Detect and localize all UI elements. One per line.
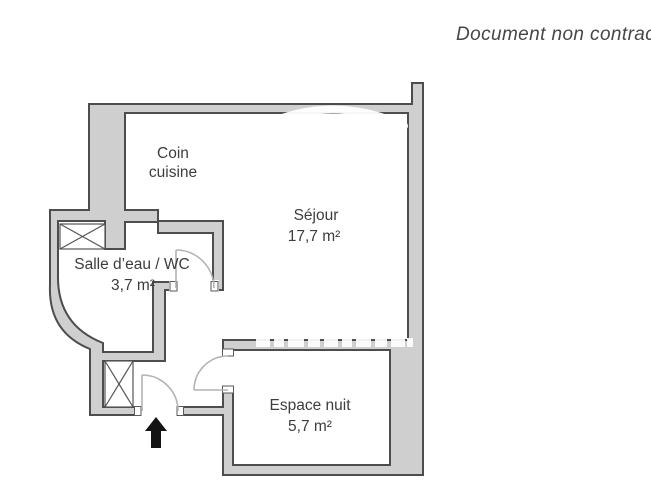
bathroom-shaft-box (60, 224, 105, 249)
room-name: Salle d’eau / WC (74, 256, 189, 273)
room-area: 3,7 m² (111, 277, 155, 294)
room-name: Séjour (294, 207, 339, 224)
room-name-line2: cuisine (149, 164, 197, 181)
room-label-coin-cuisine: Coin cuisine (149, 145, 197, 181)
entrance-arrow-icon (145, 417, 167, 448)
wall-structure (50, 83, 423, 475)
room-area: 17,7 m² (288, 228, 341, 245)
jamb (135, 407, 142, 416)
floor-plan-page: Document non contractuel (0, 0, 651, 488)
bedroom-door-opening (221, 355, 235, 387)
floor-plan-drawing: Coin cuisine Séjour 17,7 m² Salle d’eau … (0, 0, 651, 488)
room-name: Espace nuit (270, 397, 352, 414)
door-jambs (135, 282, 234, 416)
room-label-espace-nuit: Espace nuit 5,7 m² (270, 397, 352, 435)
room-area: 5,7 m² (288, 418, 332, 435)
jamb (223, 349, 234, 356)
door-openings (134, 280, 235, 417)
room-label-sejour: Séjour 17,7 m² (288, 207, 341, 245)
entrance-closet-box (105, 361, 133, 407)
room-name-line1: Coin (157, 145, 189, 162)
